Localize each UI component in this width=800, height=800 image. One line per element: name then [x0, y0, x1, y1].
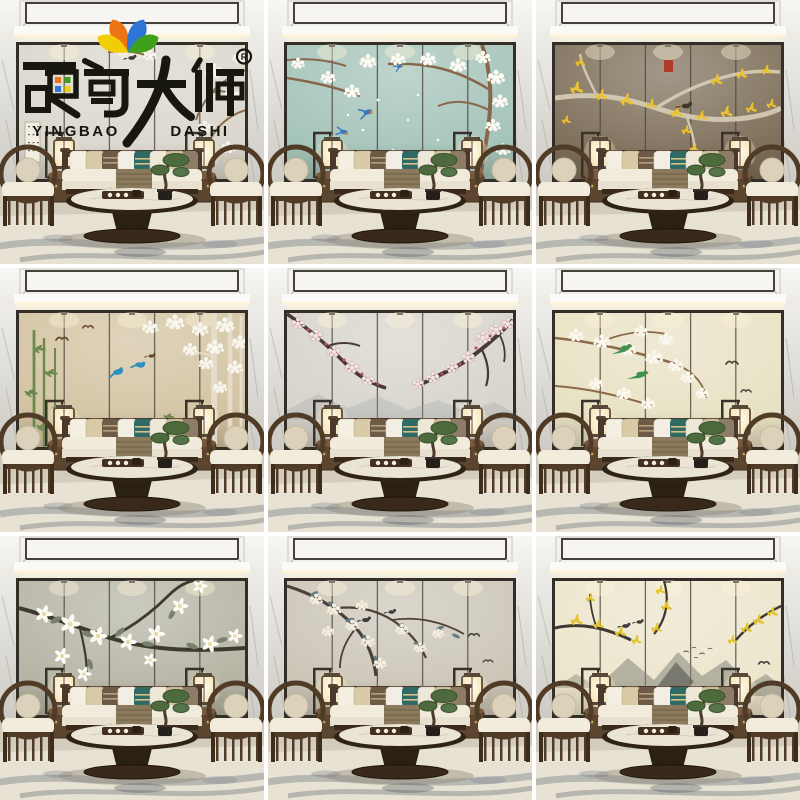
- room-scene-3: [536, 0, 800, 264]
- room-scene-1: [0, 0, 264, 264]
- room-scene-6: [536, 268, 800, 532]
- product-tile-3-gold-ginkgo[interactable]: [536, 0, 800, 264]
- product-tile-5-grey-plum[interactable]: [268, 268, 532, 532]
- room-scene-5: [268, 268, 532, 532]
- product-tile-6-blossom-parrots[interactable]: [536, 268, 800, 532]
- product-tile-2-teal-plum[interactable]: [268, 0, 532, 264]
- product-tile-7-sage-magnolia[interactable]: [0, 536, 264, 800]
- room-scene-9: [536, 536, 800, 800]
- product-tile-9-ink-mountains[interactable]: [536, 536, 800, 800]
- room-scene-8: [268, 536, 532, 800]
- product-tile-1-brand-cover[interactable]: [0, 0, 264, 264]
- product-tile-8-warmgrey-birds[interactable]: [268, 536, 532, 800]
- product-image-grid: [0, 0, 800, 800]
- room-scene-7: [0, 536, 264, 800]
- product-tile-4-bamboo-birch[interactable]: [0, 268, 264, 532]
- room-scene-2: [268, 0, 532, 264]
- room-scene-4: [0, 268, 264, 532]
